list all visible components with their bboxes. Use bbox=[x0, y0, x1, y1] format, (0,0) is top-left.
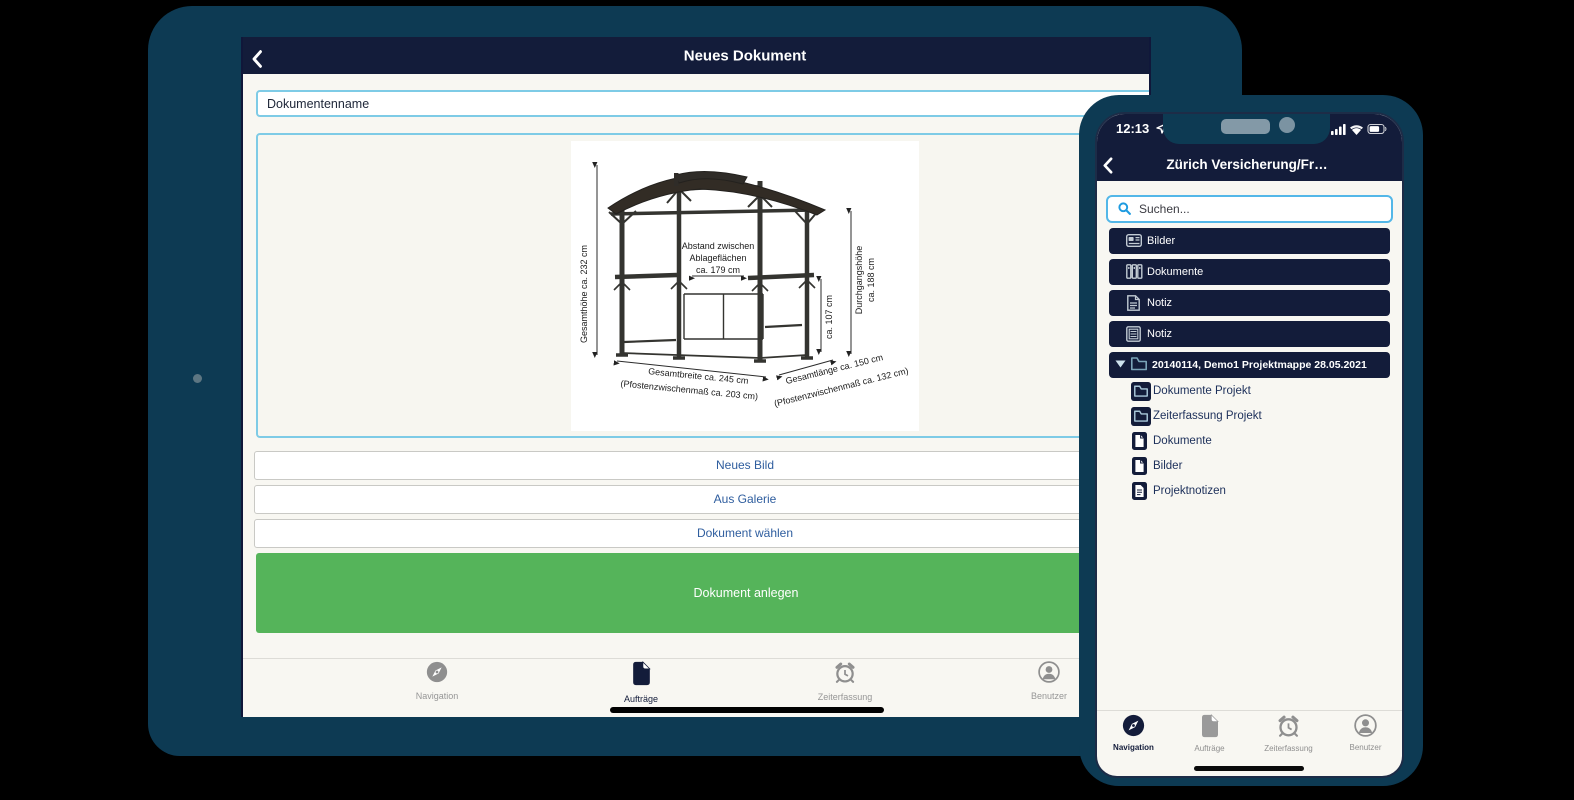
svg-text:Abstand zwischen: Abstand zwischen bbox=[682, 241, 755, 251]
svg-text:ca. 179 cm: ca. 179 cm bbox=[696, 265, 740, 275]
svg-text:ca. 188 cm: ca. 188 cm bbox=[866, 258, 876, 302]
svg-text:Durchgangshöhe: Durchgangshöhe bbox=[854, 246, 864, 315]
svg-text:ca. 107 cm: ca. 107 cm bbox=[824, 295, 834, 339]
svg-text:Gesamthöhe ca. 232 cm: Gesamthöhe ca. 232 cm bbox=[579, 245, 589, 343]
svg-text:Ablageflächen: Ablageflächen bbox=[689, 253, 746, 263]
